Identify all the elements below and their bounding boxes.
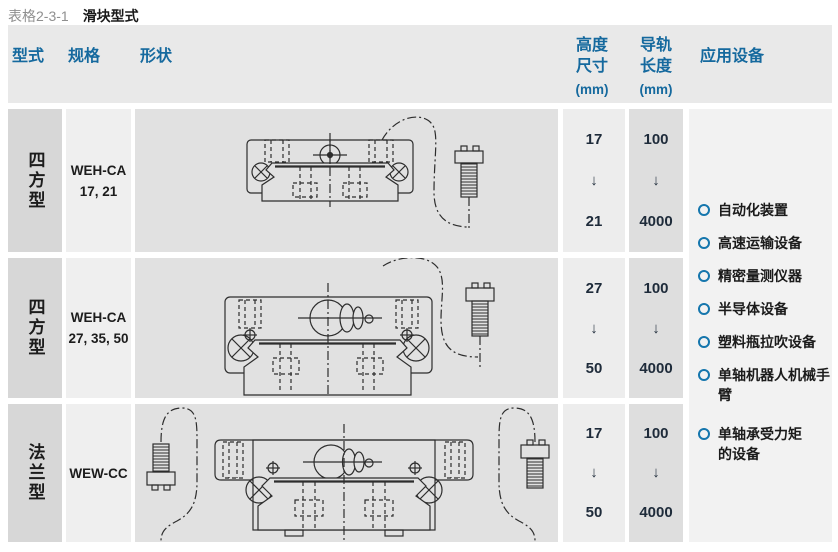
technical-drawing-weh-ca-27-35-50 bbox=[135, 258, 558, 398]
cell-height-row3: 17 ↓ 50 bbox=[563, 404, 625, 542]
application-item: 塑料瓶拉吹设备 bbox=[689, 332, 832, 352]
down-arrow-icon: ↓ bbox=[590, 320, 598, 337]
caption-number: 表格2-3-1 bbox=[8, 8, 69, 24]
col-header-rail-unit: (mm) bbox=[632, 82, 680, 97]
rail-max: 4000 bbox=[639, 360, 672, 377]
type-label: 四方型 bbox=[23, 151, 48, 211]
cell-shape-row3 bbox=[135, 404, 558, 542]
circle-bullet-icon bbox=[698, 428, 710, 440]
cap-screw-icon bbox=[455, 146, 483, 229]
application-label: 高速运输设备 bbox=[718, 235, 802, 251]
down-arrow-icon: ↓ bbox=[590, 172, 598, 189]
spec-label: WEH-CA 17, 21 bbox=[71, 160, 127, 202]
application-label: 半导体设备 bbox=[718, 301, 788, 317]
height-max: 50 bbox=[586, 360, 603, 377]
cell-height-row1: 17 ↓ 21 bbox=[563, 109, 625, 252]
down-arrow-icon: ↓ bbox=[652, 464, 660, 481]
cell-spec-row1: WEH-CA 17, 21 bbox=[66, 109, 131, 252]
catalog-page: 表格2-3-1滑块型式 型式 规格 形状 高度 尺寸 (mm) 导轨 长度 (m… bbox=[0, 0, 838, 552]
centerline-curve bbox=[161, 408, 197, 541]
rail-max: 4000 bbox=[639, 504, 672, 521]
cap-screw-icon bbox=[147, 444, 175, 490]
centerline-curve bbox=[382, 117, 467, 227]
application-item: 单轴机器人机械手 臂 bbox=[689, 365, 832, 405]
dashed-hole bbox=[265, 140, 393, 162]
cell-shape-row2 bbox=[135, 258, 558, 398]
cell-spec-row3: WEW-CC bbox=[66, 404, 131, 542]
spec-label: WEH-CA 27, 35, 50 bbox=[68, 307, 128, 349]
cell-type-row2: 四方型 bbox=[8, 258, 62, 398]
rail-min: 100 bbox=[643, 425, 668, 442]
technical-drawing-wew-cc bbox=[135, 404, 558, 542]
col-header-height: 高度 尺寸 (mm) bbox=[568, 35, 616, 97]
application-item: 精密量测仪器 bbox=[689, 266, 832, 286]
col-header-height-unit: (mm) bbox=[568, 82, 616, 97]
height-max: 21 bbox=[586, 213, 603, 230]
cell-height-row2: 27 ↓ 50 bbox=[563, 258, 625, 398]
height-min: 17 bbox=[586, 131, 603, 148]
spec-label: WEW-CC bbox=[69, 463, 127, 484]
circle-bullet-icon bbox=[698, 303, 710, 315]
col-header-spec: 规格 bbox=[68, 47, 100, 67]
application-label: 精密量测仪器 bbox=[718, 268, 802, 284]
height-min: 27 bbox=[586, 280, 603, 297]
cell-spec-row2: WEH-CA 27, 35, 50 bbox=[66, 258, 131, 398]
application-label: 自动化装置 bbox=[718, 202, 788, 218]
col-header-height-label: 高度 尺寸 bbox=[568, 35, 616, 77]
col-header-type: 型式 bbox=[12, 47, 44, 67]
table-header-row: 型式 规格 形状 高度 尺寸 (mm) 导轨 长度 (mm) 应用设备 bbox=[8, 25, 832, 103]
cell-rail-row3: 100 ↓ 4000 bbox=[629, 404, 683, 542]
circle-bullet-icon bbox=[698, 369, 710, 381]
circle-bullet-icon bbox=[698, 270, 710, 282]
height-min: 17 bbox=[586, 425, 603, 442]
applications-list: 自动化装置 高速运输设备 精密量测仪器 半导体设备 塑料瓶拉吹设备 单轴机器人机… bbox=[689, 200, 832, 477]
application-label: 塑料瓶拉吹设备 bbox=[718, 334, 816, 350]
cell-shape-row1 bbox=[135, 109, 558, 252]
applications-panel: 自动化装置 高速运输设备 精密量测仪器 半导体设备 塑料瓶拉吹设备 单轴机器人机… bbox=[689, 109, 832, 542]
circle-bullet-icon bbox=[698, 237, 710, 249]
application-label: 单轴承受力矩 的设备 bbox=[718, 426, 802, 462]
application-label: 单轴机器人机械手 臂 bbox=[718, 367, 830, 403]
type-label: 法兰型 bbox=[23, 443, 48, 503]
cell-type-row1: 四方型 bbox=[8, 109, 62, 252]
circle-bullet-icon bbox=[698, 204, 710, 216]
rail-min: 100 bbox=[643, 280, 668, 297]
application-item: 单轴承受力矩 的设备 bbox=[689, 424, 832, 464]
technical-drawing-weh-ca-17-21 bbox=[135, 109, 558, 252]
cell-rail-row1: 100 ↓ 4000 bbox=[629, 109, 683, 252]
rail-min: 100 bbox=[643, 131, 668, 148]
caption-title: 滑块型式 bbox=[83, 8, 139, 24]
col-header-applications: 应用设备 bbox=[700, 47, 764, 67]
cap-screw-icon bbox=[521, 440, 549, 488]
down-arrow-icon: ↓ bbox=[652, 172, 660, 189]
application-item: 高速运输设备 bbox=[689, 233, 832, 253]
col-header-rail-label: 导轨 长度 bbox=[632, 35, 680, 77]
cell-rail-row2: 100 ↓ 4000 bbox=[629, 258, 683, 398]
cell-type-row3: 法兰型 bbox=[8, 404, 62, 542]
application-item: 半导体设备 bbox=[689, 299, 832, 319]
grease-nipple bbox=[303, 445, 382, 479]
down-arrow-icon: ↓ bbox=[652, 320, 660, 337]
col-header-rail: 导轨 长度 (mm) bbox=[632, 35, 680, 97]
type-label: 四方型 bbox=[23, 298, 48, 358]
application-item: 自动化装置 bbox=[689, 200, 832, 220]
down-arrow-icon: ↓ bbox=[590, 464, 598, 481]
table-caption: 表格2-3-1滑块型式 bbox=[8, 6, 139, 26]
rail-max: 4000 bbox=[639, 213, 672, 230]
circle-bullet-icon bbox=[698, 336, 710, 348]
col-header-shape: 形状 bbox=[140, 47, 172, 67]
height-max: 50 bbox=[586, 504, 603, 521]
grease-nipple bbox=[298, 300, 382, 336]
